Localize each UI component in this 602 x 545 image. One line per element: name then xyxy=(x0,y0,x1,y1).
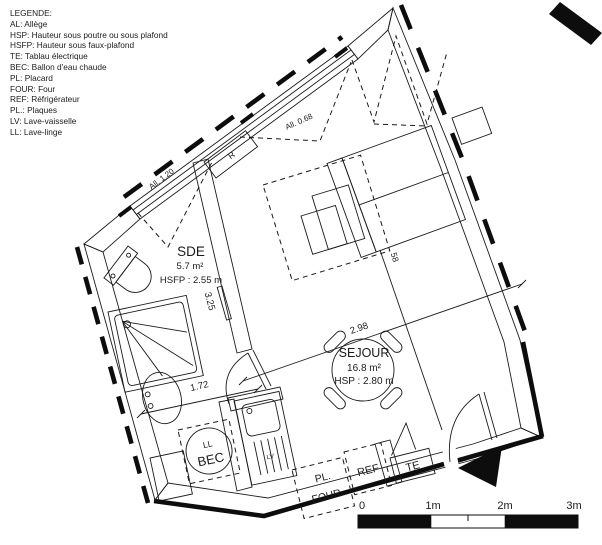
wall-segment xyxy=(348,8,393,59)
dim-sill-top: All. 0.68 xyxy=(284,112,315,132)
sde-area: 5.7 m² xyxy=(177,261,204,272)
wall-segment-right xyxy=(388,8,541,437)
scale-3m: 3m xyxy=(566,500,581,512)
hob-label: PL. xyxy=(314,470,332,485)
sde-ceiling: HSFP : 2.55 m xyxy=(160,275,222,286)
water-heater-label: BEC xyxy=(196,449,225,469)
toilet xyxy=(104,246,160,302)
sejour-ceiling: HSP : 2.80 m xyxy=(334,376,393,387)
dimension-lines xyxy=(137,280,526,418)
nightstand xyxy=(452,107,492,144)
sejour-area: 16.8 m² xyxy=(347,363,382,374)
party-wall-line-right xyxy=(401,5,527,337)
partition-kitchen xyxy=(219,399,252,491)
sde-name: SDE xyxy=(177,244,205,259)
wall-segment xyxy=(84,206,140,252)
exterior-walls xyxy=(84,8,541,515)
floor-plan-drawing: LL BEC LV PL. FOUR REF TE xyxy=(0,0,602,545)
dim-sde-depth: 3.25 xyxy=(202,291,217,312)
floor-plan-page: LEGENDE: AL: Allège HSP: Hauteur sous po… xyxy=(0,0,602,545)
wall-trim xyxy=(217,286,231,320)
scale-1m: 1m xyxy=(425,500,440,512)
boundary-mark xyxy=(549,2,602,45)
dim-sde-width: 1.72 xyxy=(189,379,210,394)
room-label-sejour: SEJOUR 16.8 m² HSP : 2.80 m xyxy=(334,346,393,387)
window-band xyxy=(118,37,358,219)
partition-walls xyxy=(193,159,402,491)
sejour-name: SEJOUR xyxy=(339,346,390,360)
hob-oven-box: PL. FOUR xyxy=(292,457,355,518)
dim-sejour-width: 2.98 xyxy=(349,320,370,336)
wall-outline xyxy=(523,342,542,437)
scale-0: 0 xyxy=(359,500,365,512)
bed xyxy=(327,107,492,257)
dim-closet: 58 xyxy=(389,251,401,263)
window-mullion xyxy=(118,205,132,217)
partition-kitchen xyxy=(228,387,283,411)
scale-bar: 0 1m 2m 3m xyxy=(358,500,582,528)
shower xyxy=(108,295,203,392)
sde-door xyxy=(226,350,271,404)
electrical-panel: TE xyxy=(383,419,435,483)
oven-label: FOUR xyxy=(311,487,343,506)
chair xyxy=(322,386,347,411)
window-opening-lines xyxy=(138,36,447,247)
fridge-label: REF xyxy=(356,462,381,479)
water-heater: LL BEC xyxy=(178,419,240,484)
closet-zone xyxy=(263,155,390,280)
chair xyxy=(379,386,404,411)
scale-2m: 2m xyxy=(497,500,512,512)
washer-label: LL xyxy=(202,438,214,450)
kitchen-sink: LV xyxy=(234,391,297,485)
dishwasher-label: LV xyxy=(266,453,275,462)
wall-pier xyxy=(150,451,192,501)
radiator-label: R xyxy=(226,149,237,161)
washbasin xyxy=(137,368,186,428)
kitchen-boundary-line xyxy=(380,250,442,430)
